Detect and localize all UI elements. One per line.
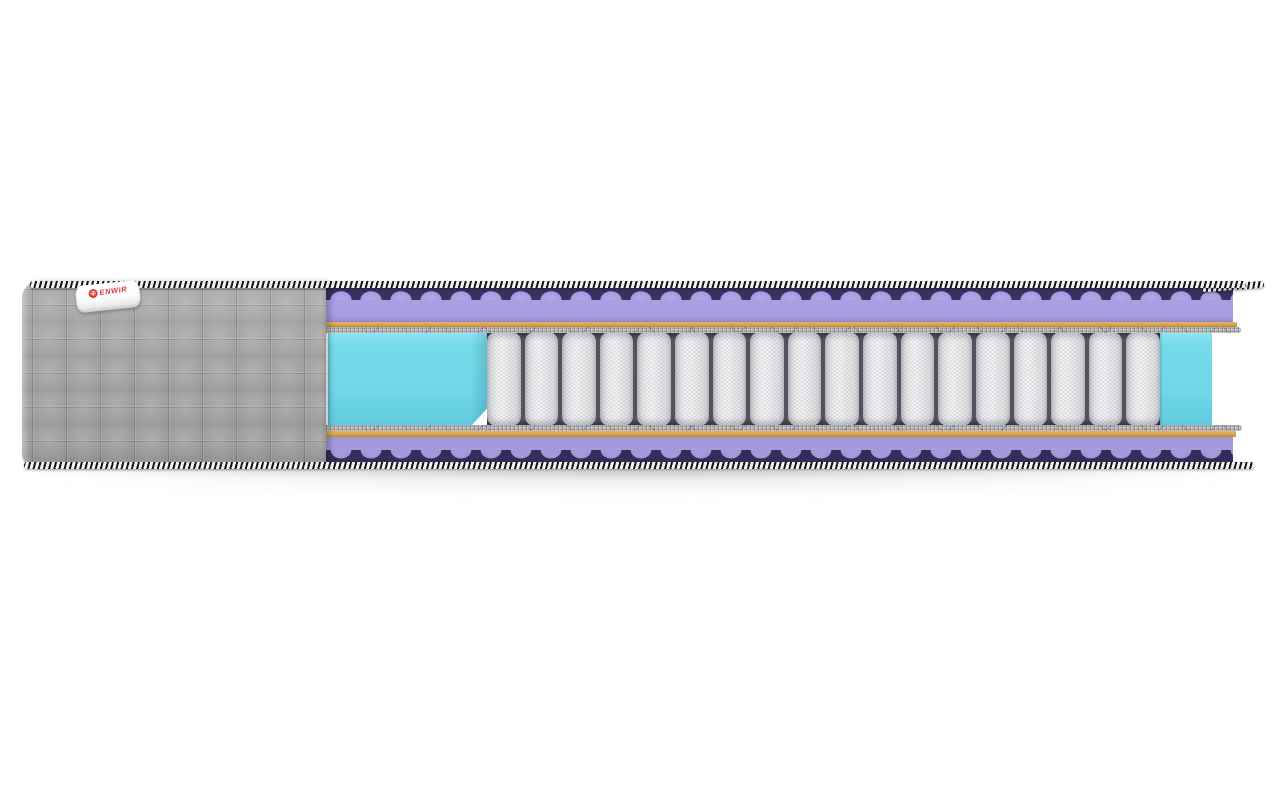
edge-braid-bottom xyxy=(24,462,1254,469)
pocket-springs xyxy=(487,333,1160,425)
spring-pocket xyxy=(675,333,709,425)
spring-pocket xyxy=(1051,333,1085,425)
spring-pocket xyxy=(750,333,784,425)
spring-pocket xyxy=(976,333,1010,425)
spring-pocket xyxy=(1126,333,1160,425)
spring-pocket xyxy=(562,333,596,425)
spring-pocket xyxy=(713,333,747,425)
brand-label-text: ENWIR xyxy=(98,284,127,297)
spring-pocket xyxy=(637,333,671,425)
spring-pocket xyxy=(788,333,822,425)
wave-foam-top-layer xyxy=(326,287,1233,322)
product-image: D ENWIR xyxy=(0,0,1280,800)
spring-pocket xyxy=(1014,333,1048,425)
spring-pocket xyxy=(863,333,897,425)
spring-pocket xyxy=(938,333,972,425)
spring-pocket xyxy=(1089,333,1123,425)
side-support-foam-right xyxy=(1160,333,1212,425)
mattress-cross-section: D ENWIR xyxy=(22,280,1245,470)
brand-logo-icon: D xyxy=(88,289,98,299)
wave-foam-top-crests xyxy=(326,287,1233,300)
quilted-cover xyxy=(22,282,326,468)
spring-pocket xyxy=(825,333,859,425)
spring-pocket xyxy=(901,333,935,425)
edge-braid-top xyxy=(30,281,1246,288)
spring-pocket xyxy=(600,333,634,425)
wave-foam-bottom-layer xyxy=(326,437,1233,463)
spring-pocket xyxy=(487,333,521,425)
spring-core xyxy=(326,333,1232,425)
spring-pocket xyxy=(525,333,559,425)
brand-label-row: D ENWIR xyxy=(88,284,128,298)
side-support-foam-left xyxy=(328,333,487,425)
